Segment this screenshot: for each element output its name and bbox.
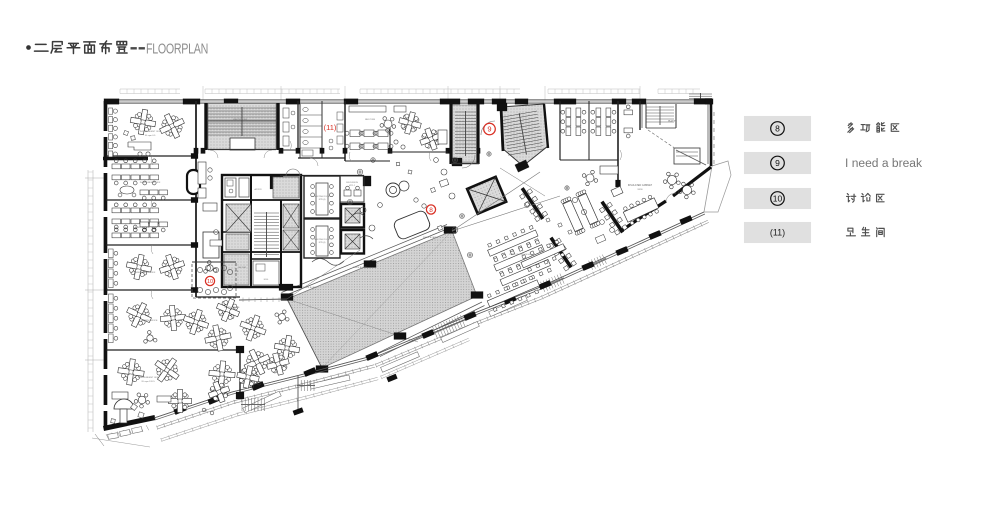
svg-text:INDEPENDENT OFF: INDEPENDENT OFF (140, 131, 161, 133)
svg-text:WHITE BOARD: WHITE BOARD (353, 266, 368, 269)
svg-text:INDEPENDENT OFF: INDEPENDENT OFF (140, 182, 161, 184)
svg-text:MEETING ROOM: MEETING ROOM (314, 196, 329, 198)
svg-text:MEETING RM: MEETING RM (233, 119, 247, 121)
svg-text:WHITE BOARD: WHITE BOARD (423, 236, 438, 239)
svg-text:I need a break: I need a break (845, 158, 922, 170)
svg-text:OPEN OFFICE: OPEN OFFICE (225, 307, 240, 309)
svg-text:DISCUSSION: DISCUSSION (346, 182, 358, 184)
svg-text:20 sqm 120.5: 20 sqm 120.5 (141, 381, 155, 383)
svg-text:9: 9 (487, 125, 491, 134)
svg-text:OPEN OFFICE: OPEN OFFICE (143, 320, 158, 322)
svg-text:BATT: BATT (668, 119, 676, 123)
svg-text:A/STOR: A/STOR (254, 188, 262, 191)
svg-text:W/36: W/36 (637, 189, 643, 191)
svg-text:WHITE BOARD: WHITE BOARD (303, 286, 318, 289)
svg-text:(11): (11) (324, 123, 337, 132)
svg-text:8: 8 (775, 124, 780, 134)
svg-text:OPEN OFFICE 20 HR: OPEN OFFICE 20 HR (509, 254, 531, 256)
svg-text:(11): (11) (770, 228, 785, 238)
svg-text:9: 9 (775, 158, 780, 168)
svg-text:REST RM: REST RM (365, 119, 375, 121)
svg-text:E100: E100 (264, 279, 268, 281)
svg-text:10: 10 (773, 194, 783, 204)
svg-text:INSULATED CABINET: INSULATED CABINET (628, 184, 653, 187)
svg-text:INDEPENDENT OFF: INDEPENDENT OFF (135, 272, 156, 274)
svg-text:MK RM: MK RM (238, 267, 245, 269)
svg-text:8PPL(4): 8PPL(4) (319, 199, 326, 201)
svg-text:MEETING ROOM: MEETING ROOM (314, 239, 329, 241)
svg-text:10: 10 (207, 279, 213, 285)
svg-text:8PPL(4): 8PPL(4) (319, 242, 326, 244)
svg-text:BTL: BTL (235, 271, 238, 273)
svg-text:FLOORPLAN: FLOORPLAN (146, 42, 208, 58)
svg-text:INDEPENDENT OFF: INDEPENDENT OFF (138, 377, 159, 379)
svg-text:4PPL.2: 4PPL.2 (349, 185, 355, 187)
svg-text:INDEPENDENT OFF: INDEPENDENT OFF (135, 227, 156, 229)
svg-text:10 sqm 6.5: 10 sqm 6.5 (145, 135, 157, 137)
svg-text:8: 8 (429, 207, 433, 214)
